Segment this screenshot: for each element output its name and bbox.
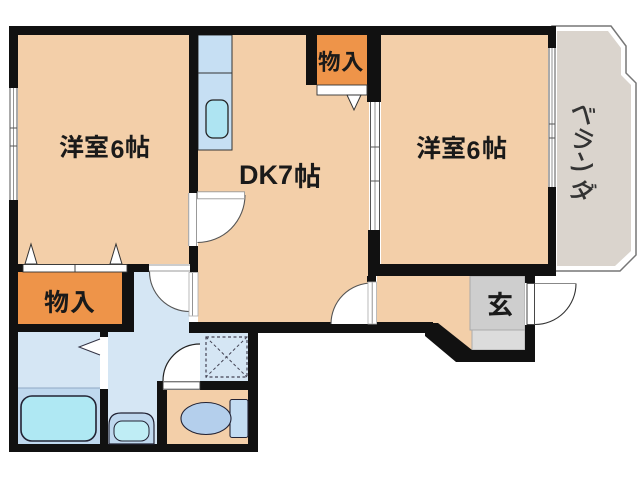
- svg-text:6: 6: [467, 137, 481, 165]
- svg-text:DK7: DK7: [239, 160, 293, 190]
- svg-text:6: 6: [111, 136, 125, 164]
